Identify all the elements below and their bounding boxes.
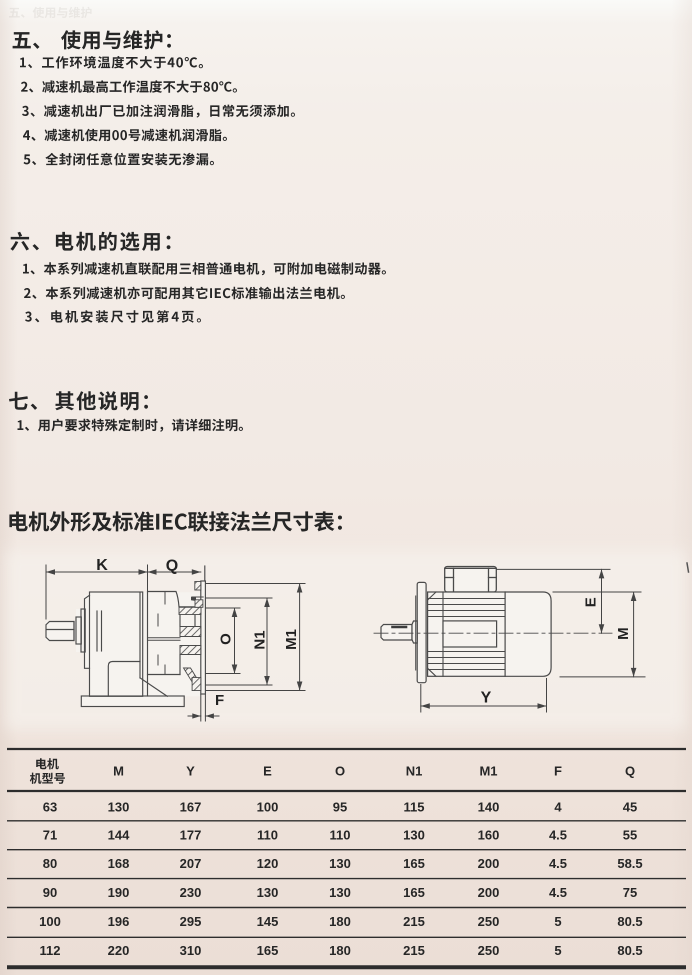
svg-text:4.5: 4.5 — [549, 885, 567, 900]
svg-text:Y: Y — [481, 690, 492, 707]
svg-text:58.5: 58.5 — [617, 856, 642, 871]
svg-text:250: 250 — [478, 943, 500, 958]
svg-text:5: 5 — [554, 914, 561, 929]
svg-text:110: 110 — [257, 828, 278, 843]
svg-text:Q: Q — [166, 558, 178, 575]
svg-text:180: 180 — [329, 943, 351, 958]
svg-text:120: 120 — [257, 856, 279, 871]
svg-text:80: 80 — [43, 856, 57, 871]
svg-text:80.5: 80.5 — [617, 914, 642, 929]
svg-text:190: 190 — [108, 885, 130, 900]
svg-text:160: 160 — [478, 828, 500, 843]
svg-text:180: 180 — [329, 914, 351, 929]
svg-text:230: 230 — [180, 885, 202, 900]
svg-text:215: 215 — [403, 943, 425, 958]
svg-text:177: 177 — [180, 828, 202, 843]
svg-text:140: 140 — [478, 800, 500, 815]
svg-text:310: 310 — [180, 943, 202, 958]
svg-text:295: 295 — [180, 914, 202, 929]
svg-text:215: 215 — [403, 914, 425, 929]
svg-text:115: 115 — [404, 800, 425, 815]
svg-text:95: 95 — [333, 800, 347, 815]
svg-text:220: 220 — [108, 943, 130, 958]
svg-text:E: E — [582, 597, 599, 607]
svg-text:130: 130 — [108, 800, 130, 815]
svg-text:100: 100 — [257, 800, 279, 815]
svg-text:130: 130 — [329, 885, 351, 900]
svg-text:K: K — [96, 557, 108, 574]
svg-text:O: O — [335, 764, 345, 779]
svg-text:200: 200 — [478, 885, 500, 900]
svg-text:207: 207 — [180, 856, 202, 871]
svg-text:167: 167 — [180, 800, 202, 815]
svg-text:110: 110 — [330, 828, 351, 843]
svg-text:55: 55 — [623, 828, 637, 843]
svg-text:F: F — [554, 764, 562, 779]
svg-text:45: 45 — [623, 800, 637, 815]
svg-text:90: 90 — [43, 885, 57, 900]
svg-text:E: E — [263, 764, 272, 779]
svg-text:4.5: 4.5 — [549, 828, 567, 843]
svg-text:M1: M1 — [283, 629, 300, 650]
svg-text:130: 130 — [257, 885, 279, 900]
svg-text:N1: N1 — [252, 630, 269, 649]
svg-text:Q: Q — [625, 764, 635, 779]
svg-text:75: 75 — [623, 885, 637, 900]
svg-text:M1: M1 — [479, 764, 497, 779]
svg-text:M: M — [615, 627, 632, 640]
svg-text:112: 112 — [40, 943, 61, 958]
svg-text:130: 130 — [329, 856, 351, 871]
svg-text:145: 145 — [257, 914, 279, 929]
svg-text:200: 200 — [478, 856, 500, 871]
svg-text:80.5: 80.5 — [617, 943, 642, 958]
svg-text:4.5: 4.5 — [549, 856, 567, 871]
svg-text:165: 165 — [257, 943, 279, 958]
svg-text:144: 144 — [108, 828, 130, 843]
svg-text:165: 165 — [403, 885, 425, 900]
svg-text:130: 130 — [403, 828, 425, 843]
svg-text:196: 196 — [108, 914, 130, 929]
svg-text:100: 100 — [39, 914, 61, 929]
svg-text:63: 63 — [43, 800, 57, 815]
svg-text:71: 71 — [43, 828, 57, 843]
svg-text:165: 165 — [403, 856, 425, 871]
svg-text:M: M — [113, 764, 124, 779]
svg-text:4: 4 — [554, 800, 562, 815]
svg-text:N1: N1 — [406, 764, 423, 779]
svg-text:Y: Y — [186, 764, 195, 779]
svg-text:168: 168 — [108, 856, 130, 871]
svg-text:F: F — [215, 692, 224, 709]
svg-text:5: 5 — [554, 943, 561, 958]
svg-text:250: 250 — [478, 914, 500, 929]
svg-text:O: O — [218, 633, 235, 645]
